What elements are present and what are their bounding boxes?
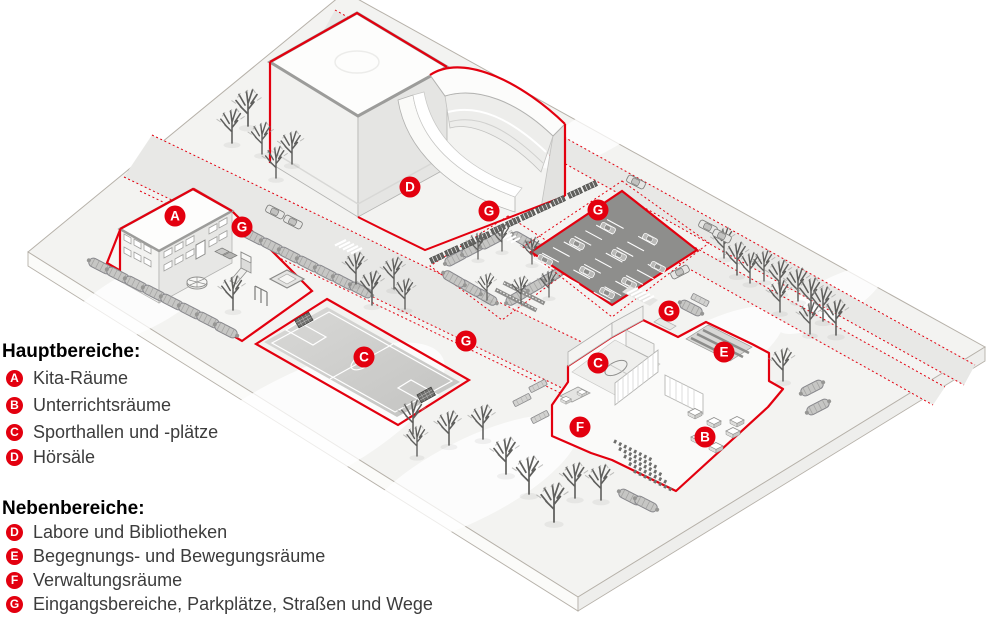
legend-item-eingang: G Eingangsbereiche, Parkplätze, Straßen … [6,594,433,615]
badge-kita: A [165,206,186,227]
badge-bike-parking: G [479,201,500,222]
badge-parking-lot: G [588,200,609,221]
legend-badge-c: C [6,424,23,441]
legend-badge-d2: D [6,524,23,541]
campus-illustration: A G D G G C G G C E F B Hauptbereiche: A… [0,0,992,620]
legend-item-kita: A Kita-Räume [6,368,128,389]
legend-label: Sporthallen und -plätze [33,422,218,443]
badge-walkway: G [456,331,477,352]
legend-item-labore: D Labore und Bibliotheken [6,522,227,543]
badge-sports-hall: C [588,353,609,374]
legend-label: Kita-Räume [33,368,128,389]
legend-badge-e: E [6,548,23,565]
legend-label: Begegnungs- und Bewegungsräume [33,546,325,567]
legend-badge-g: G [6,596,23,613]
legend-badge-a: A [6,370,23,387]
badge-classrooms: B [695,427,716,448]
badge-school-entrance: G [659,301,680,322]
legend-label: Labore und Bibliotheken [33,522,227,543]
badge-sports-field: C [354,347,375,368]
legend-item-verwaltung: F Verwaltungsräume [6,570,182,591]
badge-kita-entrance: G [232,217,253,238]
badge-meeting-area: E [714,342,735,363]
legend-label: Hörsäle [33,447,95,468]
badge-lecture-halls: D [400,177,421,198]
legend-badge-d: D [6,449,23,466]
legend-item-hoersaele: D Hörsäle [6,447,95,468]
legend-item-sport: C Sporthallen und -plätze [6,422,218,443]
legend-badge-f: F [6,572,23,589]
legend-main-title: Hauptbereiche: [2,341,140,363]
legend-secondary-title: Nebenbereiche: [2,498,145,520]
legend-label: Unterrichtsräume [33,395,171,416]
legend-item-unterricht: B Unterrichtsräume [6,395,171,416]
legend-badge-b: B [6,397,23,414]
badge-administration: F [570,417,591,438]
legend-label: Verwaltungsräume [33,570,182,591]
legend-item-begegnung: E Begegnungs- und Bewegungsräume [6,546,325,567]
legend-label: Eingangsbereiche, Parkplätze, Straßen un… [33,594,433,615]
